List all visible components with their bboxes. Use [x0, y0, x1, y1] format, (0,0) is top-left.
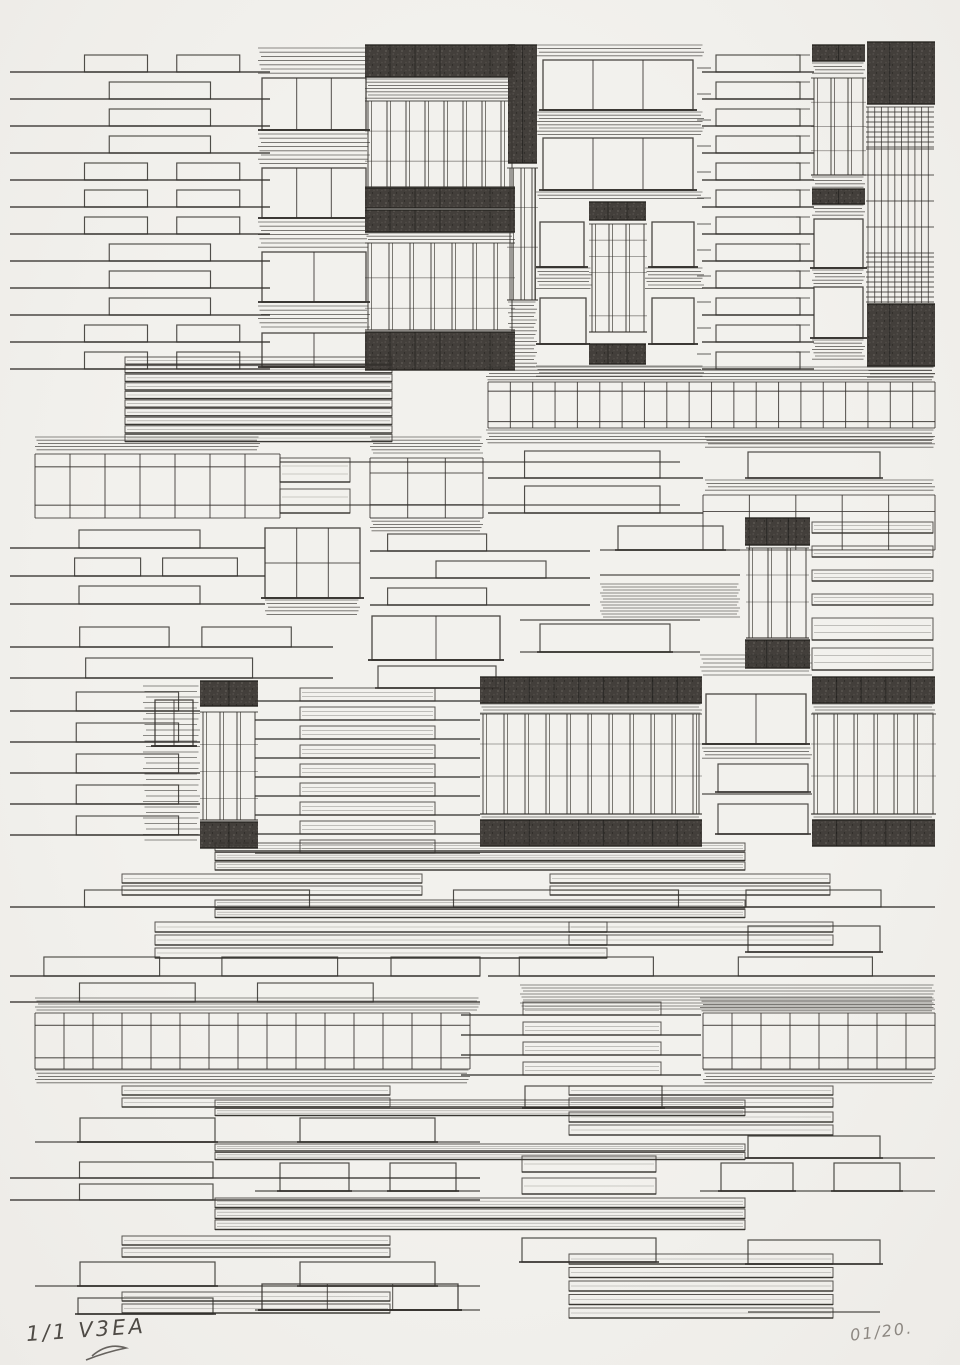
- pattern-layer: [10, 42, 936, 1360]
- artwork-canvas: [0, 0, 960, 1365]
- artwork-scan: 1/1 V3EA 01/20.: [0, 0, 960, 1365]
